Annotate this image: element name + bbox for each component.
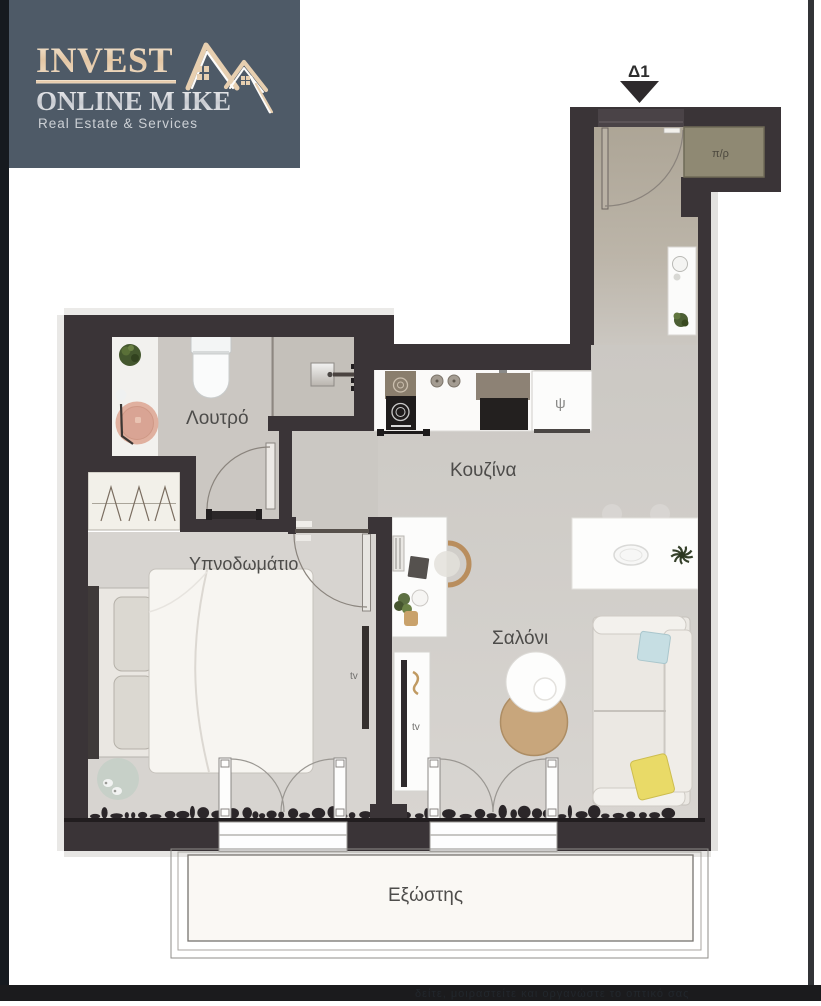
svg-text:tv: tv: [350, 671, 358, 682]
svg-text:Υπνοδωμάτιο: Υπνοδωμάτιο: [189, 554, 298, 574]
svg-text:π/ρ: π/ρ: [712, 148, 729, 160]
svg-text:INVEST: INVEST: [36, 40, 173, 80]
svg-text:Κουζίνα: Κουζίνα: [450, 460, 516, 481]
svg-text:Δ1: Δ1: [628, 62, 650, 81]
svg-text:Real Estate & Services: Real Estate & Services: [38, 116, 198, 131]
svg-text:Σαλόνι: Σαλόνι: [492, 628, 548, 649]
svg-text:δείτε, μοιραστείτε και οργανώσ: δείτε, μοιραστείτε και οργανώστε το οπτι…: [415, 988, 689, 1000]
svg-text:Εξώστης: Εξώστης: [388, 885, 463, 906]
svg-text:ψ: ψ: [555, 395, 566, 412]
svg-text:tv: tv: [412, 722, 420, 733]
svg-text:ONLINE M IKE: ONLINE M IKE: [36, 86, 231, 116]
svg-text:Λουτρό: Λουτρό: [186, 408, 249, 429]
